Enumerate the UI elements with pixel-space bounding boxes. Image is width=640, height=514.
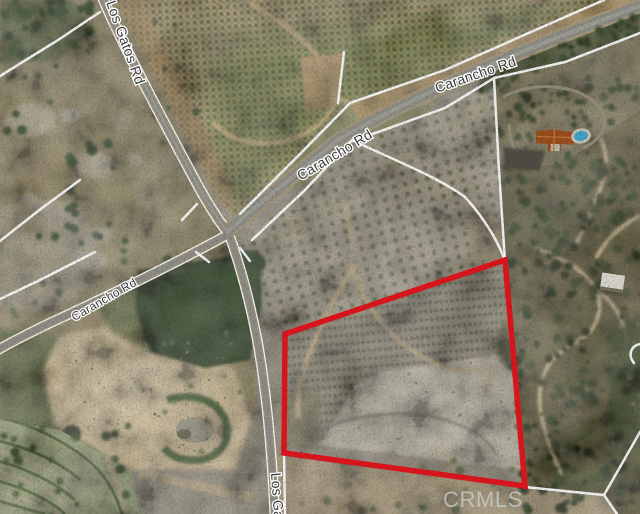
svg-text:CRMLS: CRMLS <box>443 487 523 512</box>
